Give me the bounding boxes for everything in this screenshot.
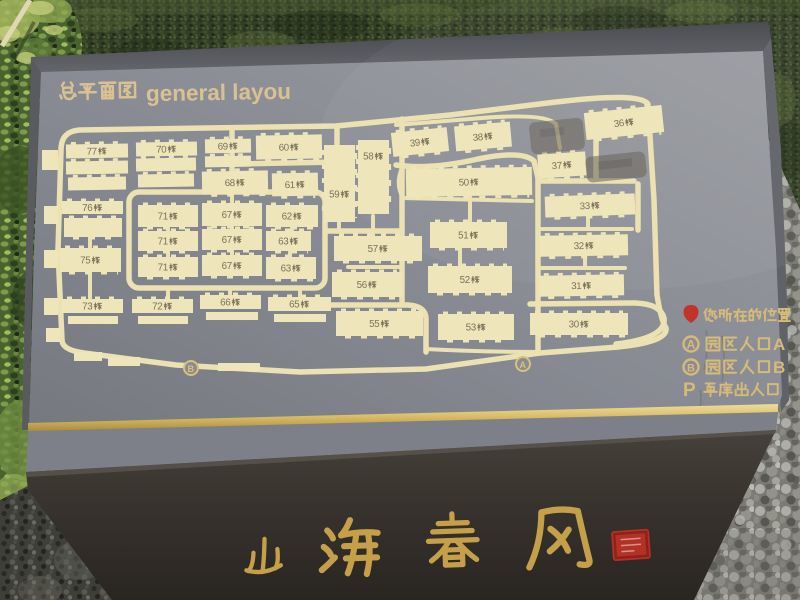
svg-text:37: 37 — [551, 161, 562, 173]
svg-text:72: 72 — [152, 302, 162, 313]
svg-text:67: 67 — [222, 261, 232, 272]
svg-text:A: A — [773, 335, 785, 354]
svg-text:75: 75 — [80, 256, 91, 267]
svg-text:50: 50 — [459, 177, 470, 188]
svg-text:55: 55 — [369, 319, 380, 330]
svg-text:A: A — [520, 360, 527, 370]
svg-text:53: 53 — [466, 323, 477, 334]
svg-text:76: 76 — [82, 203, 93, 214]
svg-text:general layou: general layou — [146, 79, 291, 107]
svg-text:38: 38 — [472, 132, 484, 144]
svg-text:73: 73 — [82, 302, 93, 313]
svg-text:59: 59 — [329, 190, 339, 201]
svg-text:77: 77 — [87, 147, 97, 158]
svg-text:33: 33 — [579, 201, 590, 212]
svg-text:70: 70 — [156, 144, 167, 155]
svg-text:67: 67 — [222, 235, 232, 246]
svg-text:B: B — [188, 364, 195, 374]
svg-text:67: 67 — [222, 210, 232, 221]
svg-text:B: B — [773, 358, 785, 377]
svg-text:61: 61 — [285, 180, 295, 191]
svg-text:57: 57 — [368, 244, 378, 255]
svg-text:P: P — [683, 380, 696, 401]
svg-text:31: 31 — [571, 281, 581, 292]
svg-text:62: 62 — [282, 212, 292, 223]
svg-text:39: 39 — [409, 138, 420, 150]
svg-text:69: 69 — [218, 142, 228, 153]
svg-text:A: A — [687, 338, 696, 352]
svg-text:71: 71 — [158, 263, 168, 274]
svg-text:63: 63 — [281, 264, 292, 275]
svg-text:B: B — [687, 363, 695, 375]
svg-text:56: 56 — [357, 280, 368, 291]
svg-text:30: 30 — [569, 320, 580, 331]
svg-text:58: 58 — [363, 152, 374, 163]
svg-text:32: 32 — [574, 241, 584, 252]
svg-text:51: 51 — [458, 231, 468, 242]
svg-text:71: 71 — [158, 212, 168, 223]
svg-text:68: 68 — [225, 178, 236, 189]
svg-text:66: 66 — [220, 298, 231, 309]
svg-text:71: 71 — [158, 237, 168, 248]
svg-text:65: 65 — [289, 300, 300, 311]
svg-text:60: 60 — [279, 142, 290, 153]
svg-text:63: 63 — [278, 237, 289, 248]
svg-text:52: 52 — [460, 275, 470, 286]
